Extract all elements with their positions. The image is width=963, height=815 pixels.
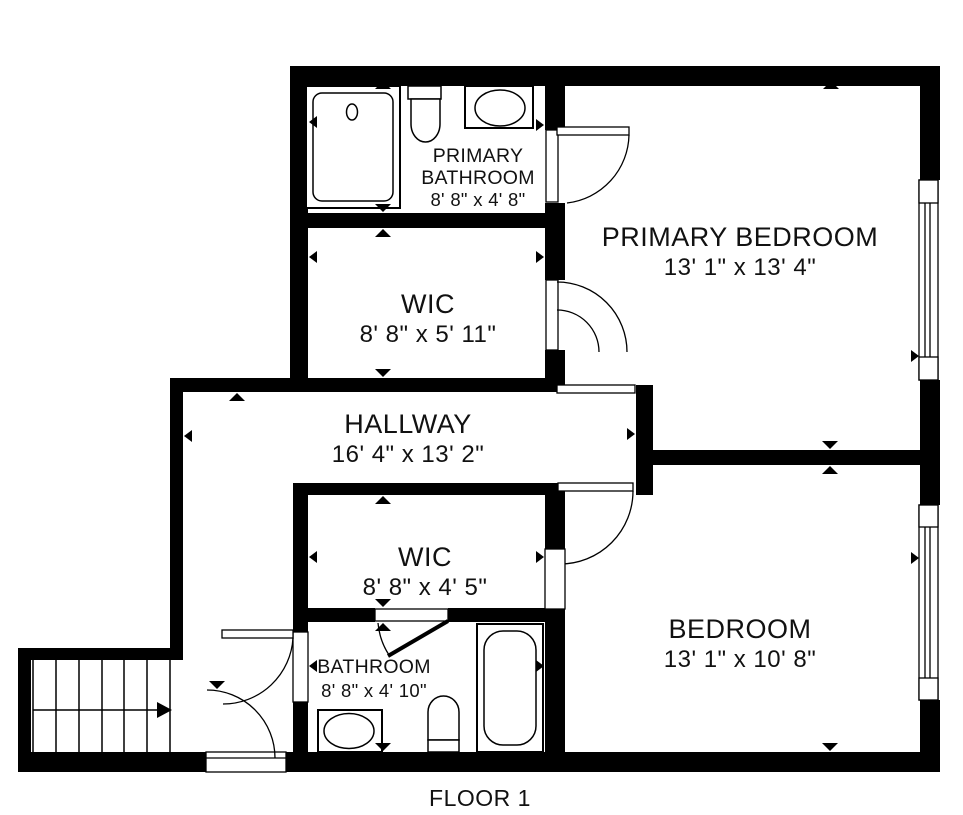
wall-top (290, 66, 940, 86)
window-primary-bedroom (919, 180, 938, 380)
primary-bathroom-dims: 8' 8" x 4' 8" (430, 189, 525, 210)
bathroom-label: BATHROOM (317, 656, 431, 678)
wall-center-seg5 (545, 609, 565, 752)
door-bathroom-from-hallway (222, 630, 308, 704)
shower-icon (306, 86, 400, 208)
door-bedroom (558, 483, 633, 564)
wall-wic2-bath-divider-left (293, 608, 375, 622)
threshold-hallway-top (557, 385, 635, 393)
wall-wic2-bath-divider-right (448, 608, 565, 622)
wic-lower-label: WIC (398, 542, 452, 572)
window-bedroom (919, 505, 938, 700)
wall-hallway-bottom (293, 483, 557, 495)
bathroom-dims: 8' 8" x 4' 10" (321, 680, 427, 701)
wic-lower-dims: 8' 8" x 4' 5" (363, 574, 488, 601)
floor-title: FLOOR 1 (429, 785, 531, 811)
door-primary-bedroom (546, 127, 629, 203)
bedroom-dims: 13' 1" x 10' 8" (664, 646, 816, 673)
toilet2-icon (428, 696, 459, 752)
wic-upper-label: WIC (401, 289, 455, 319)
wall-pbath-wic-divider (290, 213, 565, 228)
opening-wic-lower (545, 549, 565, 609)
room-labels: PRIMARY BATHROOM 8' 8" x 4' 8" PRIMARY B… (317, 145, 878, 811)
toilet-icon (408, 86, 441, 142)
wall-bottom-right (286, 752, 940, 772)
wall-center-seg2 (545, 203, 565, 280)
sink-icon (465, 86, 533, 128)
wall-hallway-top (170, 378, 557, 392)
wall-bedrooms-divider (653, 450, 922, 465)
hallway-dims: 16' 4" x 13' 2" (332, 441, 484, 468)
wall-stairs-top (18, 648, 183, 660)
wall-hallway-column (636, 385, 653, 495)
door-front-entry (206, 690, 286, 772)
stairs (33, 660, 172, 757)
door-bathroom-from-wic (375, 609, 448, 656)
primary-bedroom-label: PRIMARY BEDROOM (602, 222, 879, 252)
sink2-icon (318, 710, 382, 752)
primary-bedroom-dims: 13' 1" x 13' 4" (664, 254, 816, 281)
bedroom-label: BEDROOM (668, 614, 811, 644)
wall-bottom-left (18, 752, 207, 772)
wic-upper-dims: 8' 8" x 5' 11" (360, 321, 497, 348)
wall-center-seg1 (545, 66, 565, 130)
wall-lower-left-lower (293, 702, 308, 752)
wall-right-middle (920, 380, 940, 505)
door-wic-upper (546, 280, 627, 352)
hallway-label: HALLWAY (344, 409, 472, 439)
wall-right-upper (920, 66, 940, 180)
floor-plan: PRIMARY BATHROOM 8' 8" x 4' 8" PRIMARY B… (0, 0, 963, 815)
floor-plan-canvas: PRIMARY BATHROOM 8' 8" x 4' 8" PRIMARY B… (0, 0, 963, 815)
wall-stairs-left (18, 648, 31, 772)
bathtub-icon (477, 624, 543, 752)
primary-bathroom-label-line1: PRIMARY (433, 145, 524, 167)
primary-bathroom-label-line2: BATHROOM (421, 167, 535, 189)
wall-hallway-left (170, 378, 183, 660)
